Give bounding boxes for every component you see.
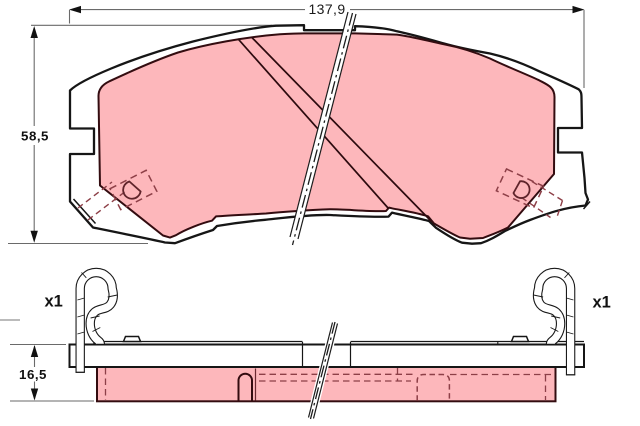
svg-text:16,5: 16,5 bbox=[19, 367, 47, 382]
svg-text:x1: x1 bbox=[593, 294, 611, 312]
svg-text:137,9: 137,9 bbox=[308, 1, 345, 17]
svg-text:58,5: 58,5 bbox=[21, 129, 49, 144]
svg-text:x1: x1 bbox=[45, 293, 63, 311]
